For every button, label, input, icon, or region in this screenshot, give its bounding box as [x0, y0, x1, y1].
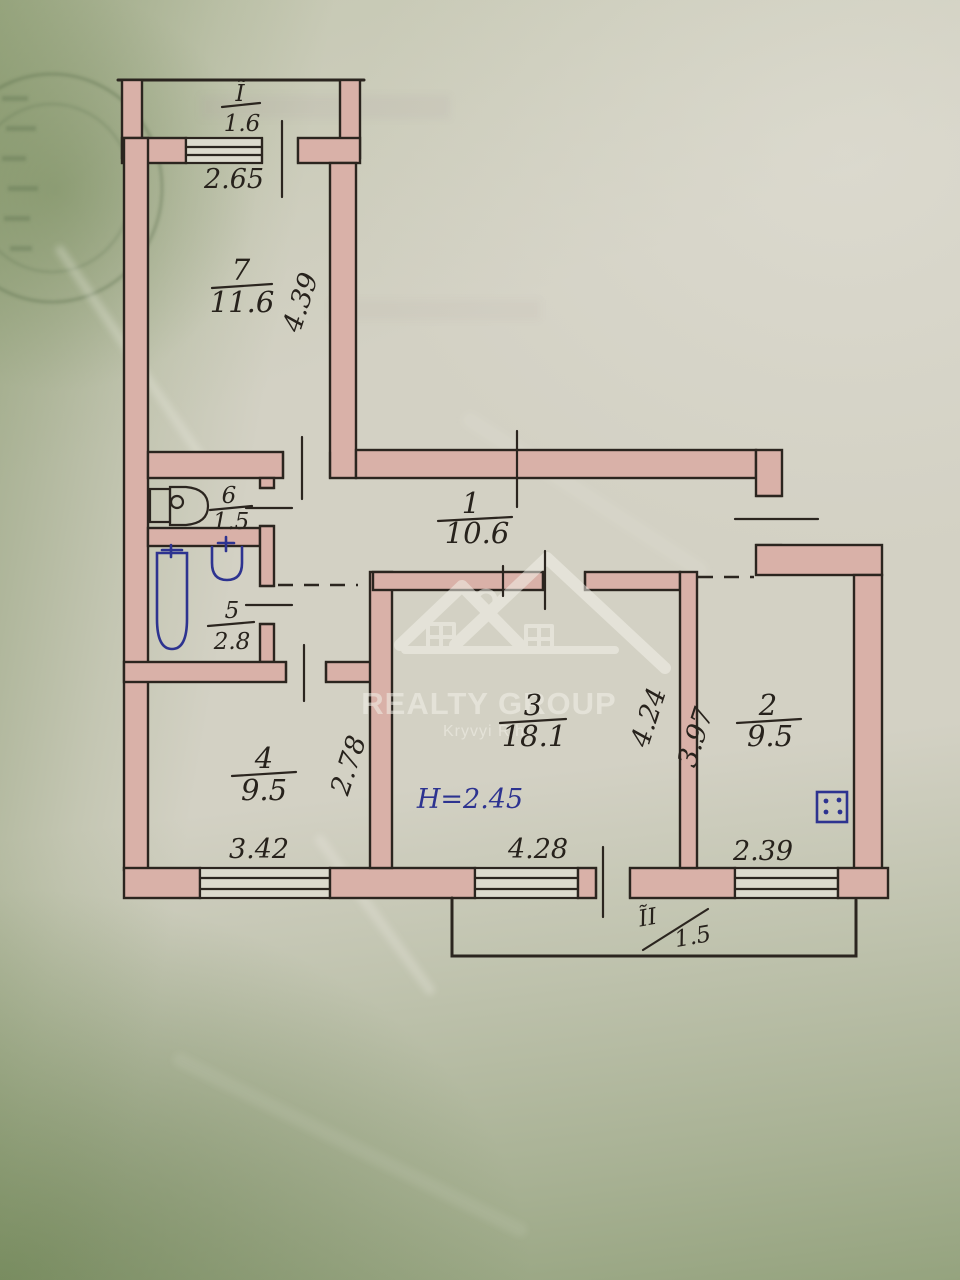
- dim-room7-width: 2.65: [203, 164, 264, 195]
- balcony-bottom-area: 1.5: [673, 921, 714, 953]
- wc-number: 6: [222, 483, 237, 509]
- wc-area: 1.5: [213, 509, 250, 535]
- wall-room7-right: [330, 163, 356, 478]
- balcony-bottom-numeral: ĨI: [635, 902, 660, 933]
- corridor-top-wall: [356, 450, 756, 478]
- dim-room7-depth: 4.39: [277, 269, 325, 337]
- window-room4: [200, 868, 330, 898]
- dim-kitchen-width: 2.39: [732, 836, 793, 867]
- dim-room3-depth: 4.24: [625, 684, 673, 752]
- labels: Ĩ 1.6 2.65 7 11.6 4.39 6 1.5 5 2.8 1 10.…: [203, 79, 801, 953]
- dim-room3-width: 4.28: [507, 834, 568, 865]
- ceiling-height-label: H=2.45: [416, 784, 523, 815]
- bathroom-number: 5: [225, 598, 240, 624]
- kitchen-label: 2 9.5: [737, 688, 801, 753]
- window-kitchen: [735, 868, 838, 898]
- dim-room4-depth: 2.78: [325, 732, 373, 800]
- kitchen-area: 9.5: [747, 719, 793, 753]
- stove-icon: [817, 792, 847, 822]
- room3-number: 3: [524, 688, 542, 722]
- room4-number: 4: [254, 741, 273, 775]
- outer-wall-left: [124, 138, 148, 870]
- bathtub-icon: [157, 545, 187, 649]
- bathroom-area: 2.8: [213, 629, 251, 655]
- room7-label: 7 11.6: [210, 253, 275, 319]
- wc-label: 6 1.5: [210, 483, 252, 535]
- room4-area: 9.5: [241, 773, 287, 807]
- toilet-icon: [150, 487, 208, 525]
- floor-plan-drawing: REALTY GROUP Kryvyi Rih: [0, 0, 960, 1280]
- dim-room4-width: 3.42: [229, 834, 289, 865]
- corridor-number: 1: [462, 486, 480, 520]
- watermark-title: REALTY GROUP: [361, 686, 616, 721]
- room4-label: 4 9.5: [232, 741, 296, 807]
- balcony-bottom-label: ĨI 1.5: [635, 902, 713, 953]
- room7-area: 11.6: [210, 285, 275, 319]
- window-room7: [186, 138, 262, 163]
- window-room3: [475, 868, 578, 898]
- kitchen-number: 2: [758, 688, 777, 722]
- corridor-area: 10.6: [445, 516, 510, 550]
- scanned-floor-plan-photo: REALTY GROUP Kryvyi Rih: [0, 0, 960, 1280]
- room7-number: 7: [232, 253, 251, 287]
- bathroom-label: 5 2.8: [208, 598, 254, 655]
- room3-area: 18.1: [502, 719, 567, 753]
- outer-wall-right: [854, 575, 882, 870]
- corridor-label: 1 10.6: [438, 486, 512, 550]
- balcony-top-area: 1.6: [224, 111, 261, 137]
